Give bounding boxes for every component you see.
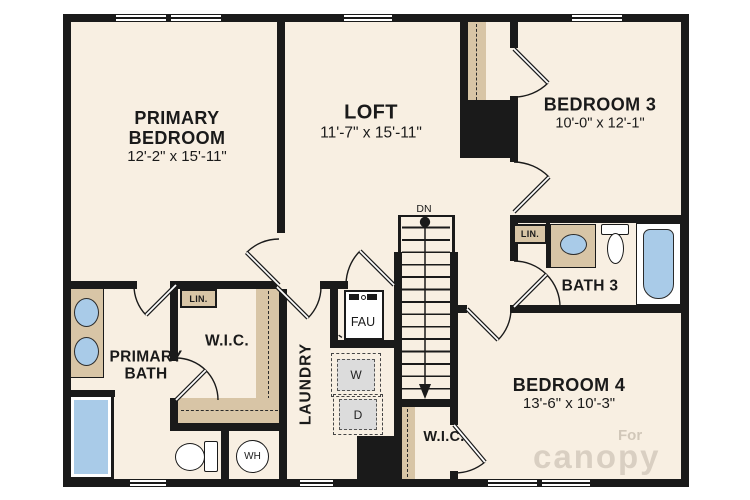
wall-bath3-bottom — [510, 305, 689, 313]
wall-bedroom3-left-upper — [510, 22, 518, 48]
sink-basin — [560, 234, 587, 255]
wall-stairs-right — [450, 252, 458, 408]
stairs-rail-left — [398, 215, 401, 253]
room-label-primary-wic: W.I.C. — [205, 332, 249, 349]
window — [129, 479, 167, 487]
dryer: D — [339, 399, 377, 430]
water-heater-label: WH — [244, 451, 261, 462]
room-name: PRIMARY BEDROOM — [95, 108, 260, 148]
wall-wic-bottom — [170, 423, 287, 431]
linen-closet-primary: LIN. — [180, 289, 217, 308]
stairs-top-edge — [400, 215, 452, 217]
room-name: LOFT — [344, 102, 398, 124]
stairs-rail-right — [452, 215, 455, 253]
wall-b4wic-right-lower — [450, 471, 458, 487]
wall-bedroom3-left-mid — [510, 96, 518, 162]
wall-primary-bath-top — [63, 281, 137, 289]
room-name: W.I.C. — [423, 429, 464, 445]
fau-control — [349, 294, 359, 300]
window — [115, 14, 167, 22]
room-label-primary-bedroom: PRIMARY BEDROOM 12'-2" x 15'-11" — [95, 108, 260, 166]
wall-chase-center — [460, 100, 514, 158]
shelf-rod-line — [407, 409, 408, 477]
room-dims: 13'-6" x 10'-3" — [523, 396, 615, 413]
wall-stairs-left — [394, 252, 402, 399]
dryer-label: D — [354, 408, 363, 422]
toilet-bowl — [607, 233, 624, 264]
shelf-rod-line — [181, 410, 278, 411]
fau-label: FAU — [351, 315, 375, 329]
toilet-tank — [204, 441, 218, 472]
room-name: BEDROOM 3 — [544, 94, 657, 114]
fau-dial — [361, 295, 366, 300]
wall-stairs-bottom — [394, 399, 458, 407]
shelf-rod-line — [476, 24, 477, 100]
water-heater: WH — [236, 440, 269, 473]
room-name: LAUNDRY — [297, 343, 314, 425]
washer-label: W — [350, 368, 361, 382]
wall-hall-segment — [320, 281, 348, 289]
sink-basin — [74, 337, 99, 366]
wall-bath3-top — [510, 215, 689, 223]
room-label-loft: LOFT 11'-7" x 15'-11" — [320, 102, 422, 143]
room-label-bedroom-4-wic: W.I.C. — [423, 429, 464, 445]
wall-toilet-divider — [221, 431, 229, 479]
window — [571, 14, 623, 22]
wall-laundry-left — [279, 289, 287, 479]
linen-closet-bath3: LIN. — [513, 224, 547, 244]
window — [343, 14, 393, 22]
window — [487, 479, 538, 487]
sink-basin — [74, 298, 99, 327]
room-label-bath-3: BATH 3 — [561, 277, 619, 294]
window — [299, 479, 334, 487]
toilet-bowl — [175, 443, 205, 471]
stairs-treads — [402, 216, 450, 398]
room-label-bedroom-3: BEDROOM 3 10'-0" x 12'-1" — [544, 94, 657, 131]
linen-label: LIN. — [521, 229, 539, 239]
wall-b4wic-right-upper — [450, 407, 458, 425]
window — [541, 479, 591, 487]
linen-label: LIN. — [189, 294, 207, 304]
room-name: W.I.C. — [205, 332, 249, 349]
wall-exterior-right — [681, 14, 689, 487]
wall-fau-bottom — [330, 340, 402, 348]
bedroom3-closet-shelf — [468, 22, 486, 102]
room-name: BATH 3 — [561, 277, 619, 294]
washer: W — [337, 359, 375, 391]
shower — [68, 394, 114, 480]
wall-primary-loft — [277, 14, 285, 233]
floor-plan: WH LIN. LIN. W D — [0, 0, 750, 500]
room-dims: 10'-0" x 12'-1" — [555, 115, 644, 131]
room-label-primary-bath: PRIMARY BATH — [101, 349, 191, 384]
wall-wic-top — [170, 281, 277, 289]
room-label-laundry: LAUNDRY — [297, 343, 314, 425]
window — [170, 14, 222, 22]
fau-control — [367, 294, 377, 300]
wall-bedroom3-closet-left — [460, 14, 468, 100]
room-dims: 12'-2" x 15'-11" — [127, 149, 227, 166]
bathtub — [643, 229, 674, 299]
room-name: PRIMARY BATH — [101, 349, 191, 384]
wall-b4wic-left — [394, 399, 402, 487]
room-label-bedroom-4: BEDROOM 4 13'-6" x 10'-3" — [513, 375, 626, 413]
room-name: BEDROOM 4 — [513, 375, 626, 395]
wall-landing-stub — [450, 305, 467, 313]
room-dims: 11'-7" x 15'-11" — [320, 125, 422, 142]
stairs-dn-label: DN — [416, 203, 431, 215]
